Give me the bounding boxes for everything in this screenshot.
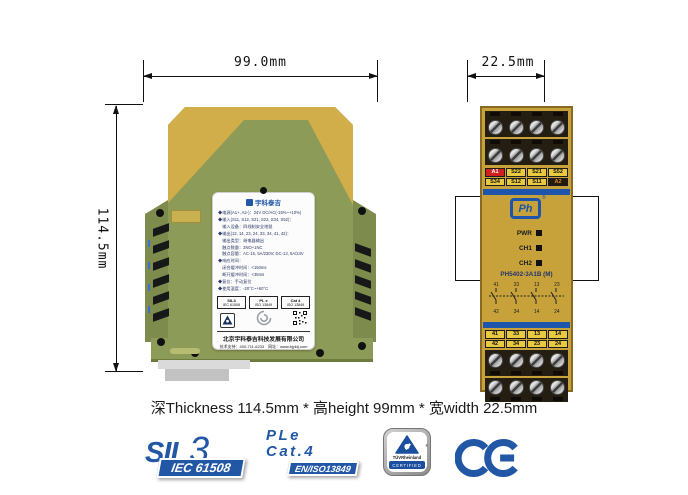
dimension-tick xyxy=(143,60,144,102)
wiring-line xyxy=(573,280,599,281)
led-label-pwr: PWR xyxy=(482,230,532,237)
terminal-label: S34 xyxy=(485,178,505,187)
side-width-dimension-line xyxy=(468,76,544,77)
terminal-label: 41 xyxy=(485,330,505,339)
registered-mark: ® xyxy=(542,195,546,201)
screw-dot xyxy=(358,342,366,350)
housing-latch xyxy=(171,210,201,223)
blue-band xyxy=(483,322,570,328)
terminal-screw[interactable] xyxy=(550,120,565,135)
vent-marker xyxy=(148,306,150,313)
dimensions-summary: 深Thickness 114.5mm * 高height 99mm * 宽wid… xyxy=(0,397,688,418)
dimension-tick xyxy=(544,60,545,102)
screw-dot xyxy=(157,338,165,346)
terminal-label: A2 xyxy=(548,178,568,187)
terminal-label: 33 xyxy=(506,330,526,339)
company-name: 北京宇科泰吉科技发展有限公司 xyxy=(213,334,314,343)
spec-line: 触点数量：3NO+1NC xyxy=(218,245,313,252)
spec-line: 输出类型：继电器输出 xyxy=(218,238,313,245)
top-terminal-labels: A1 S22 S21 S52 S34 S12 S11 A2 xyxy=(485,168,568,186)
din-rail-clip xyxy=(158,360,250,369)
wiring-line xyxy=(455,196,456,281)
dimension-tick xyxy=(377,60,378,102)
spec-line: ◆输出(13, 14, 23, 24, 33, 34, 41, 42)： xyxy=(218,231,313,238)
terminal-screw[interactable] xyxy=(529,380,544,395)
terminal-label: 13 xyxy=(527,330,547,339)
terminal-label: 23 xyxy=(527,340,547,349)
tuv-badge-frame: TÜVRheinland CERTIFIED ® xyxy=(383,428,431,476)
tuv-wordmark: TÜVRheinland xyxy=(393,455,422,460)
terminal-label: S22 xyxy=(506,168,526,177)
brand-row: 宇科泰吉 xyxy=(213,197,314,207)
housing-left-flange xyxy=(145,200,168,342)
terminal-block xyxy=(485,350,568,376)
wiring-line xyxy=(598,196,599,281)
terminal-screw[interactable] xyxy=(488,148,503,163)
ch2-led xyxy=(536,260,542,266)
terminal-label: S52 xyxy=(548,168,568,177)
spec-line: ◆输入(S11, S12, S21, S22, S34, S52)： xyxy=(218,217,313,224)
brand-name: 宇科泰吉 xyxy=(255,197,281,207)
label-logos-row xyxy=(213,312,314,329)
wiring-line xyxy=(455,196,480,197)
contact-diagram-bottom-labels: 42 34 14 24 xyxy=(486,309,567,315)
spec-line: ◆响应时间： xyxy=(218,258,313,265)
screw-dot xyxy=(260,187,267,194)
front-height-dimension-line xyxy=(116,106,117,371)
din-rail-clip-lower xyxy=(165,369,229,381)
registered-mark: ® xyxy=(425,444,428,448)
pwr-led xyxy=(536,230,542,236)
sil3-logo: SIL3 IEC 61508 xyxy=(145,429,257,481)
spec-line: ◆电源(A1+, A2-)：24V DC/AC(-15%~+10%) xyxy=(218,210,313,217)
terminal-screw[interactable] xyxy=(550,380,565,395)
terminal-label: 34 xyxy=(506,340,526,349)
dimension-tick xyxy=(467,60,468,102)
terminal-label: 14 xyxy=(548,330,568,339)
spec-line: 断开缓冲时间：<35ms xyxy=(218,272,313,279)
terminal-screw[interactable] xyxy=(509,120,524,135)
qr-code-icon xyxy=(293,311,307,330)
ccc-swirl-icon xyxy=(256,310,272,331)
terminal-label: S12 xyxy=(506,178,526,187)
cert-box-sil: SIL3 IEC 61508 xyxy=(217,296,246,309)
ple-cat4-logo: PLe Cat.4 EN/ISO13849 xyxy=(266,428,361,480)
iec-61508-band: IEC 61508 xyxy=(156,458,246,478)
cert-box-cat: Cat 4 ISO 13849 xyxy=(281,296,310,309)
terminal-screw[interactable] xyxy=(509,353,524,368)
vent-marker xyxy=(148,262,150,269)
spec-line: ◆复位：手动复位 xyxy=(218,279,313,286)
terminal-screw[interactable] xyxy=(529,353,544,368)
housing-right-flange xyxy=(353,200,376,342)
spec-lines: ◆电源(A1+, A2-)：24V DC/AC(-15%~+10%) ◆输入(S… xyxy=(218,210,313,293)
tuv-triangle-icon xyxy=(395,435,419,454)
contact-diagram: 41 33 13 23 42 34 14 24 xyxy=(486,282,567,315)
ce-mark-icon xyxy=(455,433,525,483)
blue-band xyxy=(483,189,570,195)
terminal-label: S11 xyxy=(527,178,547,187)
screw-dot xyxy=(156,209,164,217)
led-label-ch2: CH2 xyxy=(482,260,532,267)
terminal-screw[interactable] xyxy=(488,120,503,135)
terminal-block xyxy=(485,139,568,165)
front-width-dimension-line xyxy=(144,76,377,77)
terminal-block xyxy=(485,111,568,137)
terminal-screw[interactable] xyxy=(550,353,565,368)
vent-marker xyxy=(148,284,150,291)
ph-logo: Ph xyxy=(510,198,541,219)
wiring-line xyxy=(573,196,599,197)
vent-marker xyxy=(148,240,150,247)
terminal-label: S21 xyxy=(527,168,547,177)
tuv-badge: TÜVRheinland CERTIFIED ® xyxy=(387,432,427,472)
housing-slot xyxy=(170,348,200,354)
cat4-text: Cat.4 xyxy=(266,444,361,460)
contact-diagram-lines xyxy=(486,288,567,304)
terminal-screw[interactable] xyxy=(488,380,503,395)
tuv-triangle-icon xyxy=(220,313,235,328)
front-view-device: 宇科泰吉 ◆电源(A1+, A2-)：24V DC/AC(-15%~+10%) … xyxy=(143,100,378,395)
tuv-rheinland-logo: TÜVRheinland CERTIFIED ® xyxy=(383,428,435,482)
front-width-dimension-label: 99.0mm xyxy=(218,55,303,70)
spec-line: 触点容量：AC-15, 5A/230V; DC-13, 5A/24V xyxy=(218,251,313,258)
terminal-screw[interactable] xyxy=(529,120,544,135)
label-divider xyxy=(217,331,310,332)
cert-box-pl: PL e ISO 13849 xyxy=(249,296,278,309)
brand-logo-icon xyxy=(246,199,253,206)
terminal-screw[interactable] xyxy=(550,148,565,163)
ch1-led xyxy=(536,245,542,251)
product-spec-sheet: 99.0mm 114.5mm xyxy=(0,0,688,495)
model-number: PH5402-3A1B (M) xyxy=(482,271,571,278)
label-cert-boxes: SIL3 IEC 61508 PL e ISO 13849 Cat 4 ISO … xyxy=(213,296,314,309)
side-view-device: A1 S22 S21 S52 S34 S12 S11 A2 Ph ® PWR C… xyxy=(480,106,573,392)
dimension-tick xyxy=(105,371,143,372)
terminal-label: 42 xyxy=(485,340,505,349)
pl-text: PLe xyxy=(266,428,361,444)
screw-dot xyxy=(316,349,324,357)
tuv-certified-band: CERTIFIED xyxy=(389,461,425,469)
side-width-dimension-label: 22.5mm xyxy=(468,55,548,70)
front-height-dimension-label: 114.5mm xyxy=(95,179,110,299)
terminal-label: A1 xyxy=(485,168,505,177)
terminal-screw[interactable] xyxy=(509,148,524,163)
terminal-screw[interactable] xyxy=(488,353,503,368)
bottom-terminal-labels: 41 33 13 14 42 34 23 24 xyxy=(485,330,568,348)
led-label-ch1: CH1 xyxy=(482,245,532,252)
terminal-label: 24 xyxy=(548,340,568,349)
en-iso13849-band: EN/ISO13849 xyxy=(287,461,360,476)
screw-dot xyxy=(358,207,366,215)
product-label: 宇科泰吉 ◆电源(A1+, A2-)：24V DC/AC(-15%~+10%) … xyxy=(212,192,315,350)
spec-line: ◆使用温度：-20°C~+60°C xyxy=(218,286,313,293)
dimension-tick xyxy=(105,104,143,105)
company-contact: 技术支持：400-711-6233 网址：www.bjyktj.com xyxy=(213,344,314,350)
wiring-line xyxy=(455,280,480,281)
terminal-screw[interactable] xyxy=(529,148,544,163)
spec-line: 输入设备：四线制安全地毯 xyxy=(218,224,313,231)
terminal-screw[interactable] xyxy=(509,380,524,395)
spec-line: 闭合缓冲时间：<150ms xyxy=(218,265,313,272)
